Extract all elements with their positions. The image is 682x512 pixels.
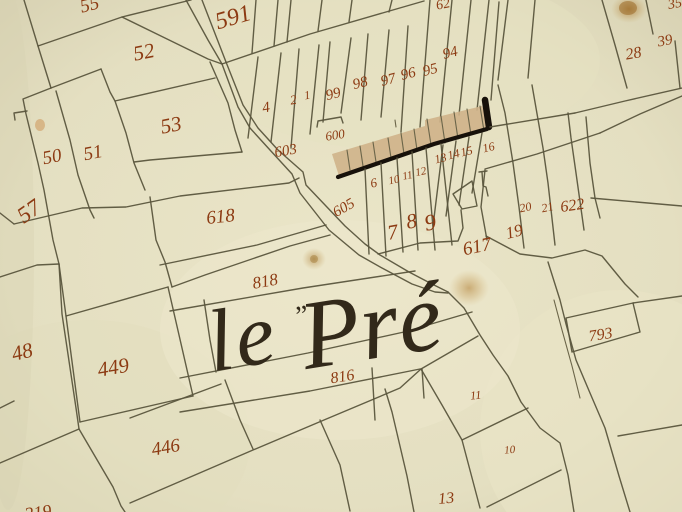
svg-text:600: 600 (324, 126, 346, 144)
svg-text:13: 13 (438, 490, 455, 508)
svg-text:10: 10 (504, 444, 517, 457)
svg-text:35: 35 (666, 0, 682, 13)
svg-text:622: 622 (559, 196, 585, 216)
svg-text:11: 11 (470, 388, 482, 403)
svg-text:51: 51 (82, 141, 105, 165)
svg-text:53: 53 (158, 111, 183, 139)
svg-text:39: 39 (655, 32, 674, 51)
svg-text:28: 28 (624, 44, 643, 64)
svg-text:618: 618 (205, 205, 236, 229)
svg-text:Pré: Pré (292, 261, 454, 391)
